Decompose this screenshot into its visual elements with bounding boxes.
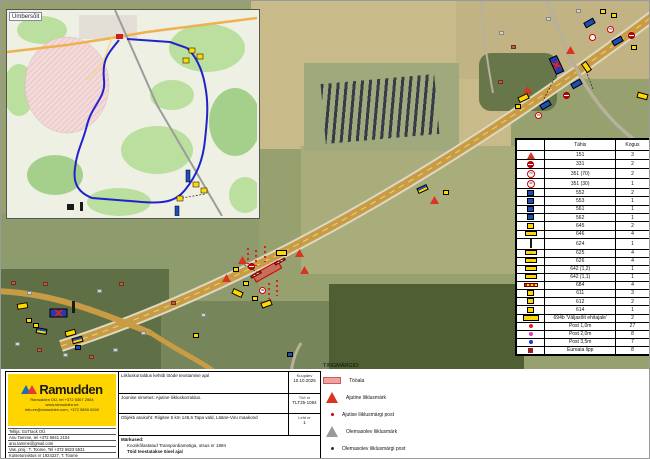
legend-code: 562 xyxy=(545,213,615,221)
ys-sign-icon xyxy=(527,223,534,229)
map-marker-hs xyxy=(63,353,68,357)
map-marker-ys xyxy=(611,13,617,18)
symbols-legend-label: Ajutine liiklusmärk xyxy=(346,395,386,401)
legend-qty: 2 xyxy=(615,314,649,322)
legend-code: 151 xyxy=(545,151,615,160)
map-marker-hs xyxy=(499,31,504,35)
bar-sign-icon xyxy=(524,283,538,287)
legend-code: 625 xyxy=(545,249,615,257)
legend-qty: 4 xyxy=(615,257,649,265)
map-marker-ys xyxy=(243,281,249,286)
title-block: Ramudden Ramudden OÜ, tel +372 5307 2554… xyxy=(5,371,321,459)
contact-block: Tellija: GoTrack OÜAnu Tamme, tel +372 5… xyxy=(8,428,116,459)
legend-qty: 2 xyxy=(615,160,649,169)
symbols-legend-item: Olemasolev liiklusmärgi post xyxy=(323,440,513,457)
legend-code: 642 (1,2) xyxy=(545,265,615,273)
map-marker-hs xyxy=(113,348,118,352)
legend-row: 70351 (70)2 xyxy=(517,169,650,179)
legend-row: 642 (1,2)1 xyxy=(517,265,650,273)
ys-sign-icon xyxy=(527,298,534,304)
legend-row: Post 1,0m27 xyxy=(517,322,650,330)
map-marker-ys xyxy=(631,45,637,50)
legend-qty: 1 xyxy=(615,238,649,249)
dot-mag-sign-icon xyxy=(529,332,533,336)
company-name: Ramudden xyxy=(39,382,102,397)
legend-header-row: Tähis Kogus xyxy=(517,140,650,151)
legend-header-code: Tähis xyxy=(545,140,615,151)
legend-row: 5522 xyxy=(517,189,650,197)
map-marker-det xyxy=(50,309,68,318)
legend-row: 5611 xyxy=(517,205,650,213)
info-row-validity: Liikluskorraldus kehtib tööde teostamise… xyxy=(118,372,288,394)
sheet-cell: Leht nr 1 xyxy=(288,414,320,436)
map-marker-bs xyxy=(287,352,293,357)
map-marker-pc xyxy=(255,250,257,266)
map-marker-hr xyxy=(119,282,124,286)
legend-row: Post 2,0m8 xyxy=(517,330,650,338)
legend-qty: 27 xyxy=(615,322,649,330)
legend-row: 5531 xyxy=(517,197,650,205)
symbols-legend-item: Ajutise liiklusmärgi post xyxy=(323,406,513,423)
bs-sign-icon xyxy=(527,206,534,212)
map-marker-hs xyxy=(15,342,20,346)
legend-code: 624 xyxy=(545,238,615,249)
company-address-3: info.ee@ramudden.com, +372 5859 6240 xyxy=(8,407,116,412)
legend-qty: 1 xyxy=(615,265,649,273)
bs-sign-icon xyxy=(527,198,534,204)
legend-code: 331 xyxy=(545,160,615,169)
map-marker-ys xyxy=(26,318,32,323)
map-marker-hr xyxy=(89,355,94,359)
legend-row: 6452 xyxy=(517,222,650,230)
legend-qty: 7 xyxy=(615,338,649,346)
date-value: 10.10.2025 xyxy=(291,378,318,383)
symbols-legend: TINGMÄRGID: TööalaAjutine liiklusmärkAju… xyxy=(323,363,513,457)
temp-dot-icon xyxy=(331,413,334,416)
symbols-legend-label: Ajutise liiklusmärgi post xyxy=(342,412,394,418)
map-marker-sp xyxy=(589,34,596,41)
c-sign-icon: 30 xyxy=(527,180,535,188)
tri-sign-icon xyxy=(527,152,535,159)
legend-row: 694b 'Väljasõit ehitajale'2 xyxy=(517,314,650,322)
legend-qty: 8 xyxy=(615,330,649,338)
legend-qty: 4 xyxy=(615,249,649,257)
notes-title: Märkused: xyxy=(121,437,318,442)
note-item: Töid teostatakse öisel ajal xyxy=(127,449,318,455)
ex-dot-icon xyxy=(331,447,334,450)
map-marker-bs xyxy=(75,345,81,350)
legend-row: 6113 xyxy=(517,289,650,297)
notes-list: Kooskõlastatud Transpordiametiga, otsus … xyxy=(127,443,318,454)
ex-tri-icon xyxy=(326,426,338,437)
legend-qty: 2 xyxy=(615,189,649,197)
legend-row: 1513 xyxy=(517,151,650,160)
work-no-value: TLT25-1084 xyxy=(291,400,318,405)
legend-code: 351 (70) xyxy=(545,169,615,179)
legend-code: 645 xyxy=(545,222,615,230)
map-marker-hs xyxy=(27,291,32,295)
legend-qty: 2 xyxy=(615,297,649,305)
legend-qty: 2 xyxy=(615,169,649,179)
legend-code: Euroaia lipp xyxy=(545,346,615,354)
map-marker-hr xyxy=(11,281,16,285)
map-marker-hs xyxy=(576,9,581,13)
kp-sign-icon xyxy=(530,239,532,248)
legend-code: Post 2,0m xyxy=(545,330,615,338)
legend-row: 3312 xyxy=(517,160,650,169)
map-marker-pc xyxy=(268,283,270,299)
legend-code: 351 (30) xyxy=(545,179,615,189)
ys-sign-icon xyxy=(527,307,534,313)
ta-plan-sheet: 707030 xyxy=(0,0,650,459)
legend-row: 6241 xyxy=(517,238,650,249)
map-marker-ne xyxy=(628,32,635,39)
logo-triangle-red xyxy=(27,385,37,394)
legend-row: 30351 (30)1 xyxy=(517,179,650,189)
ne-sign-icon xyxy=(527,161,534,168)
legend-row: 6122 xyxy=(517,297,650,305)
legend-code: 553 xyxy=(545,197,615,205)
legend-code: 642 (1,1) xyxy=(545,273,615,281)
map-marker-ys xyxy=(233,267,239,272)
map-marker-hs xyxy=(141,331,146,335)
map-marker-kp xyxy=(72,301,75,313)
legend-code: 694b 'Väljasõit ehitajale' xyxy=(545,314,615,322)
legend-row: 5621 xyxy=(517,213,650,221)
yw-sign-icon xyxy=(523,315,539,321)
map-marker-hs xyxy=(546,17,551,21)
yb-sign-icon: ← xyxy=(525,258,537,263)
legend-row: 6141 xyxy=(517,306,650,314)
symbols-legend-label: Olemasolev liiklusmärgi post xyxy=(342,446,405,452)
inset-label: Ümbersõit xyxy=(9,12,42,21)
yb-sign-icon: → xyxy=(525,250,537,255)
legend-qty: 8 xyxy=(615,346,649,354)
legend-qty: 4 xyxy=(615,281,649,289)
info-row-location: Objekti asukoht: Riigitee 5 km 145,6 Tap… xyxy=(118,414,288,436)
c-sign-icon: 70 xyxy=(527,170,535,178)
legend-code: 684 xyxy=(545,281,615,289)
legend-code: Post 3,5m xyxy=(545,338,615,346)
map-marker-sp: 70 xyxy=(607,26,614,33)
yb-sign-icon xyxy=(525,231,537,236)
info-row-notes: Märkused: Kooskõlastatud Transpordiameti… xyxy=(118,436,320,459)
legend-qty: 1 xyxy=(615,306,649,314)
map-marker-ys xyxy=(443,190,449,195)
legend-qty: 1 xyxy=(615,213,649,221)
info-row-drawing-title: Joonise nimetus: Ajutine liikluskorraldu… xyxy=(118,394,288,414)
symbols-legend-label: Olemasolev liiklusmärk xyxy=(346,429,397,435)
yb-sign-icon xyxy=(525,274,537,279)
legend-code: 561 xyxy=(545,205,615,213)
bs-sign-icon xyxy=(527,214,534,220)
map-marker-pc xyxy=(276,280,278,296)
map-marker-pc xyxy=(247,248,249,264)
legend-qty: 3 xyxy=(615,289,649,297)
dot-blue-sign-icon xyxy=(529,340,533,344)
legend-qty: 4 xyxy=(615,230,649,238)
dot-red-sign-icon xyxy=(529,324,533,328)
map-marker-hr xyxy=(498,80,503,84)
legend-row: 6844 xyxy=(517,281,650,289)
map-marker-hr xyxy=(43,282,48,286)
legend-qty: 1 xyxy=(615,205,649,213)
legend-qty: 3 xyxy=(615,151,649,160)
legend-code: 646 xyxy=(545,230,615,238)
legend-qty: 1 xyxy=(615,179,649,189)
map-marker-hs xyxy=(201,313,206,317)
map-marker-sp: 30 xyxy=(259,287,266,294)
legend-code: Post 1,0m xyxy=(545,322,615,330)
legend-row: Euroaia lipp8 xyxy=(517,346,650,354)
swatch-icon xyxy=(323,377,341,384)
legend-qty: 1 xyxy=(615,197,649,205)
yb-sign-icon xyxy=(525,266,537,271)
map-marker-hs xyxy=(97,289,102,293)
map-marker-hr xyxy=(171,301,176,305)
symbols-legend-label: Tööala xyxy=(349,378,364,384)
legend-code: 612 xyxy=(545,297,615,305)
legend-header-qty: Kogus xyxy=(615,140,649,151)
date-cell: Kuupäev 10.10.2025 xyxy=(288,372,320,394)
symbols-legend-item: Ajutine liiklusmärk xyxy=(323,389,513,406)
map-marker-ys xyxy=(600,9,606,14)
map-marker-ys xyxy=(515,104,521,109)
legend-row: →6254 xyxy=(517,249,650,257)
map-marker-ne xyxy=(248,263,255,270)
map-marker-ne xyxy=(563,92,570,99)
legend-header-icon xyxy=(517,140,545,151)
legend-row: ←6264 xyxy=(517,257,650,265)
map-marker-ys xyxy=(193,333,199,338)
sign-legend-table: Tähis Kogus 1513331270351 (70)230351 (30… xyxy=(515,138,650,356)
map-marker-yb xyxy=(276,250,287,256)
legend-row: Post 3,5m7 xyxy=(517,338,650,346)
map-marker-hr xyxy=(37,348,42,352)
legend-qty: 1 xyxy=(615,273,649,281)
legend-code: 626 xyxy=(545,257,615,265)
symbols-legend-title: TINGMÄRGID: xyxy=(323,363,513,369)
ramudden-logo: Ramudden xyxy=(8,382,116,397)
legend-qty: 2 xyxy=(615,222,649,230)
map-marker-sp: 70 xyxy=(535,112,542,119)
sheet-value: 1 xyxy=(291,420,318,425)
map-marker-hr xyxy=(511,45,516,49)
legend-row: 642 (1,1)1 xyxy=(517,273,650,281)
sq-dred-sign-icon xyxy=(528,348,533,353)
map-marker-ys xyxy=(252,296,258,301)
inset-map-graphics xyxy=(7,10,257,216)
ys-sign-icon xyxy=(527,290,534,296)
inset-detour-map: Ümbersõit xyxy=(6,9,260,219)
legend-code: 552 xyxy=(545,189,615,197)
work-no-cell: Töö nr TLT25-1084 xyxy=(288,394,320,414)
bs-sign-icon xyxy=(527,190,534,196)
temp-tri-icon xyxy=(326,392,338,403)
legend-code: 611 xyxy=(545,289,615,297)
map-marker-pc xyxy=(264,246,266,262)
company-logo-box: Ramudden Ramudden OÜ, tel +372 5307 2554… xyxy=(8,374,116,426)
legend-row: 6464 xyxy=(517,230,650,238)
symbols-legend-item: Olemasolev liiklusmärk xyxy=(323,423,513,440)
symbols-legend-item: Tööala xyxy=(323,372,513,389)
bottom-band: Ramudden Ramudden OÜ, tel +372 5307 2554… xyxy=(1,369,650,459)
legend-code: 614 xyxy=(545,306,615,314)
